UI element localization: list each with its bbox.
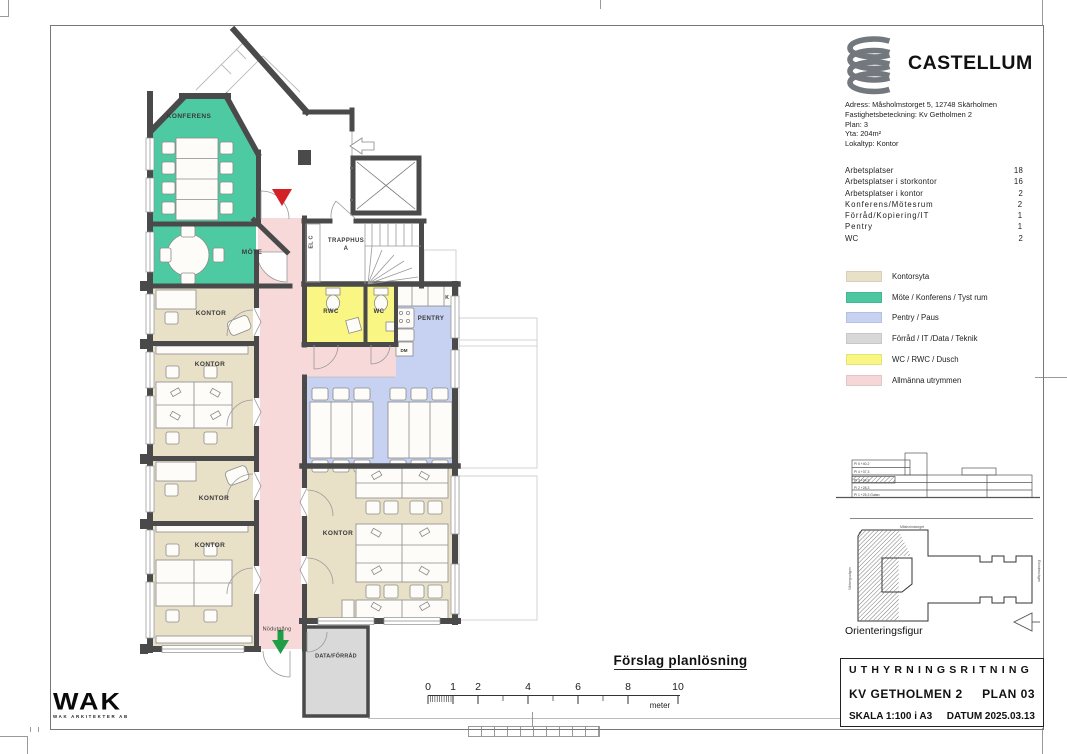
info-address: Adress: Måsholmstorget 5, 12748 Skärholm… (845, 100, 997, 110)
section-floor-4: Pl 4 +37,3 (854, 470, 869, 474)
legend-label: Kontorsyta (892, 272, 929, 281)
info-plan: Plan: 3 (845, 120, 997, 130)
fold-tick-1 (30, 727, 31, 732)
street-left: Vårbergsvägen (848, 567, 852, 590)
margin-line-top (1042, 0, 1043, 25)
room-label-pentry: PENTRY (418, 316, 445, 324)
room-fill-corridor (258, 218, 304, 649)
orientering-caption: Orienteringsfigur (845, 625, 923, 637)
stats-label: Arbetsplatser i storkontor (845, 177, 937, 188)
stats-label: Arbetsplatser (845, 166, 894, 177)
scale-8: 8 (625, 681, 631, 693)
info-property: Fastighetsbeteckning: Kv Getholmen 2 (845, 110, 997, 120)
stats-row: Arbetsplatser18 (845, 166, 1023, 177)
legend-label: Pentry / Paus (892, 313, 939, 322)
stats-row: Konferens/Mötesrum2 (845, 200, 1023, 211)
legend-swatch-forrad (846, 333, 882, 344)
property-info: Adress: Måsholmstorget 5, 12748 Skärholm… (845, 100, 997, 149)
wak-logo-subtext: WAK ARKITEKTER AB (53, 714, 129, 719)
room-label-storkontor: KONTOR (323, 530, 353, 538)
legend-item: WC / RWC / Dusch (846, 349, 1046, 370)
title-line-1: UTHYRNINGSRITNING (849, 664, 1035, 676)
balcony-outlines (459, 318, 537, 620)
legend-swatch-allmanna (846, 375, 882, 386)
room-label-kontor-2: KONTOR (195, 361, 225, 369)
title-line-2: KV GETHOLMEN 2 PLAN 03 (849, 687, 1035, 701)
castellum-logo-icon (846, 34, 904, 96)
legend-label: Förråd / IT /Data / Teknik (892, 334, 978, 343)
plan-title-text: Förslag planlösning (614, 653, 748, 670)
legend-swatch-kontorsyta (846, 271, 882, 282)
legend-item: Förråd / IT /Data / Teknik (846, 328, 1046, 349)
room-label-data-forrad: DATA/FÖRRÅD (315, 653, 357, 660)
scale-0: 0 (425, 681, 431, 693)
pointer-marker (1014, 613, 1040, 631)
stats-label: WC (845, 234, 858, 245)
scale-unit: meter (650, 701, 671, 710)
wak-logo: WAK WAK ARKITEKTER AB (53, 690, 129, 719)
crop-mark-bottom-left-2 (27, 736, 28, 754)
margin-line-bottom (1042, 728, 1043, 754)
color-legend: Kontorsyta Möte / Konferens / Tyst rum P… (846, 266, 1046, 391)
pentry-dm-label: DM (401, 348, 408, 353)
legend-item: Allmänna utrymmen (846, 370, 1046, 391)
legend-label: Möte / Konferens / Tyst rum (892, 293, 988, 302)
legend-item: Pentry / Paus (846, 308, 1046, 329)
room-label-mote: MÖTE (242, 249, 262, 257)
wak-logo-text: WAK (53, 690, 129, 713)
stats-row: Arbetsplatser i storkontor16 (845, 177, 1023, 188)
section-figure: Pl 5 +40,2 Pl 4 +37,3 Pl 3 +34,3 Pl 2 +2… (835, 445, 1045, 517)
title-date: DATUM 2025.03.13 (947, 711, 1035, 722)
orientering-divider (850, 518, 1033, 519)
stats-value: 16 (1014, 177, 1023, 188)
stats-row: Förråd/Kopiering/IT1 (845, 211, 1023, 222)
stats-row: Pentry1 (845, 222, 1023, 233)
room-fill-data (304, 627, 368, 716)
scale-10: 10 (672, 681, 684, 693)
entrance-marker (272, 189, 292, 206)
stats-value: 2 (1018, 234, 1023, 245)
legend-label: WC / RWC / Dusch (892, 355, 959, 364)
room-label-kontor-4: KONTOR (195, 542, 225, 550)
stats-table: Arbetsplatser18 Arbetsplatser i storkont… (845, 166, 1023, 245)
legend-label: Allmänna utrymmen (892, 376, 961, 385)
room-label-kontor-3: KONTOR (199, 495, 229, 503)
title-block: UTHYRNINGSRITNING KV GETHOLMEN 2 PLAN 03… (840, 658, 1044, 727)
legend-swatch-mote (846, 292, 882, 303)
street-top: Måsholmstorget (900, 525, 924, 529)
stats-label: Pentry (845, 222, 873, 233)
stats-row: WC2 (845, 234, 1023, 245)
scale-6: 6 (575, 681, 581, 693)
section-floor-3: Pl 3 +34,3 (854, 479, 869, 483)
crop-mark-top-left-2 (0, 16, 9, 17)
trapphus-line1: TRAPPHUS (328, 238, 364, 244)
stats-value: 2 (1018, 189, 1023, 200)
scale-bar: 0 1 2 4 6 8 10 meter (415, 675, 695, 720)
pentry-k-label: K (445, 295, 449, 301)
room-label-trapphus: TRAPPHUS A (328, 238, 364, 254)
stats-value: 2 (1018, 200, 1023, 211)
brand-name: CASTELLUM (908, 52, 1033, 75)
title-line-3: SKALA 1:100 i A3 DATUM 2025.03.13 (849, 711, 1035, 722)
section-floor-2: Pl 2 +28,3 (854, 486, 869, 490)
legend-swatch-wc (846, 354, 882, 365)
room-label-wc: WC (374, 309, 385, 317)
stats-label: Förråd/Kopiering/IT (845, 211, 929, 222)
street-right: Ekholmsvägen (1037, 560, 1041, 582)
floor-plan: K DM (45, 20, 605, 730)
info-type: Lokaltyp: Kontor (845, 139, 997, 149)
legend-item: Kontorsyta (846, 266, 1046, 287)
scale-1: 1 (450, 681, 456, 693)
section-floor-5: Pl 5 +40,2 (854, 462, 869, 466)
crop-mark-top-center (600, 0, 601, 9)
footprint-figure: Måsholmstorget Vårbergsvägen Ekholmsväge… (835, 520, 1047, 642)
stats-value: 1 (1018, 211, 1023, 222)
stats-label: Arbetsplatser i kontor (845, 189, 923, 200)
stats-value: 18 (1014, 166, 1023, 177)
section-floor-1: Pl 1 +25,3 Gatan (854, 493, 880, 497)
crop-mark-bottom-left (0, 736, 27, 737)
legend-swatch-pentry (846, 312, 882, 323)
drawing-sheet: K DM KONFERENS MÖTE KONTOR KONTOR KONTOR… (0, 0, 1067, 754)
room-label-konferens: KONFERENS (167, 113, 211, 121)
room-label-kontor-1: KONTOR (196, 310, 226, 318)
title-project: KV GETHOLMEN 2 (849, 687, 963, 701)
stats-row: Arbetsplatser i kontor2 (845, 189, 1023, 200)
trapphus-line2: A (344, 246, 349, 252)
legend-item: Möte / Konferens / Tyst rum (846, 287, 1046, 308)
title-plan: PLAN 03 (982, 687, 1035, 701)
crop-mark-top-left (8, 0, 9, 16)
room-label-rwc: RWC (323, 309, 338, 317)
scale-2: 2 (475, 681, 481, 693)
stats-label: Konferens/Mötesrum (845, 200, 934, 211)
scale-4: 4 (525, 681, 531, 693)
info-area: Yta: 204m² (845, 129, 997, 139)
room-label-elc: EL C (308, 235, 315, 248)
fold-tick-2 (38, 727, 39, 732)
plan-title: Förslag planlösning (598, 652, 763, 670)
title-scale: SKALA 1:100 i A3 (849, 711, 932, 722)
stats-value: 1 (1018, 222, 1023, 233)
label-nodutgang: Nödutgång (263, 626, 292, 633)
